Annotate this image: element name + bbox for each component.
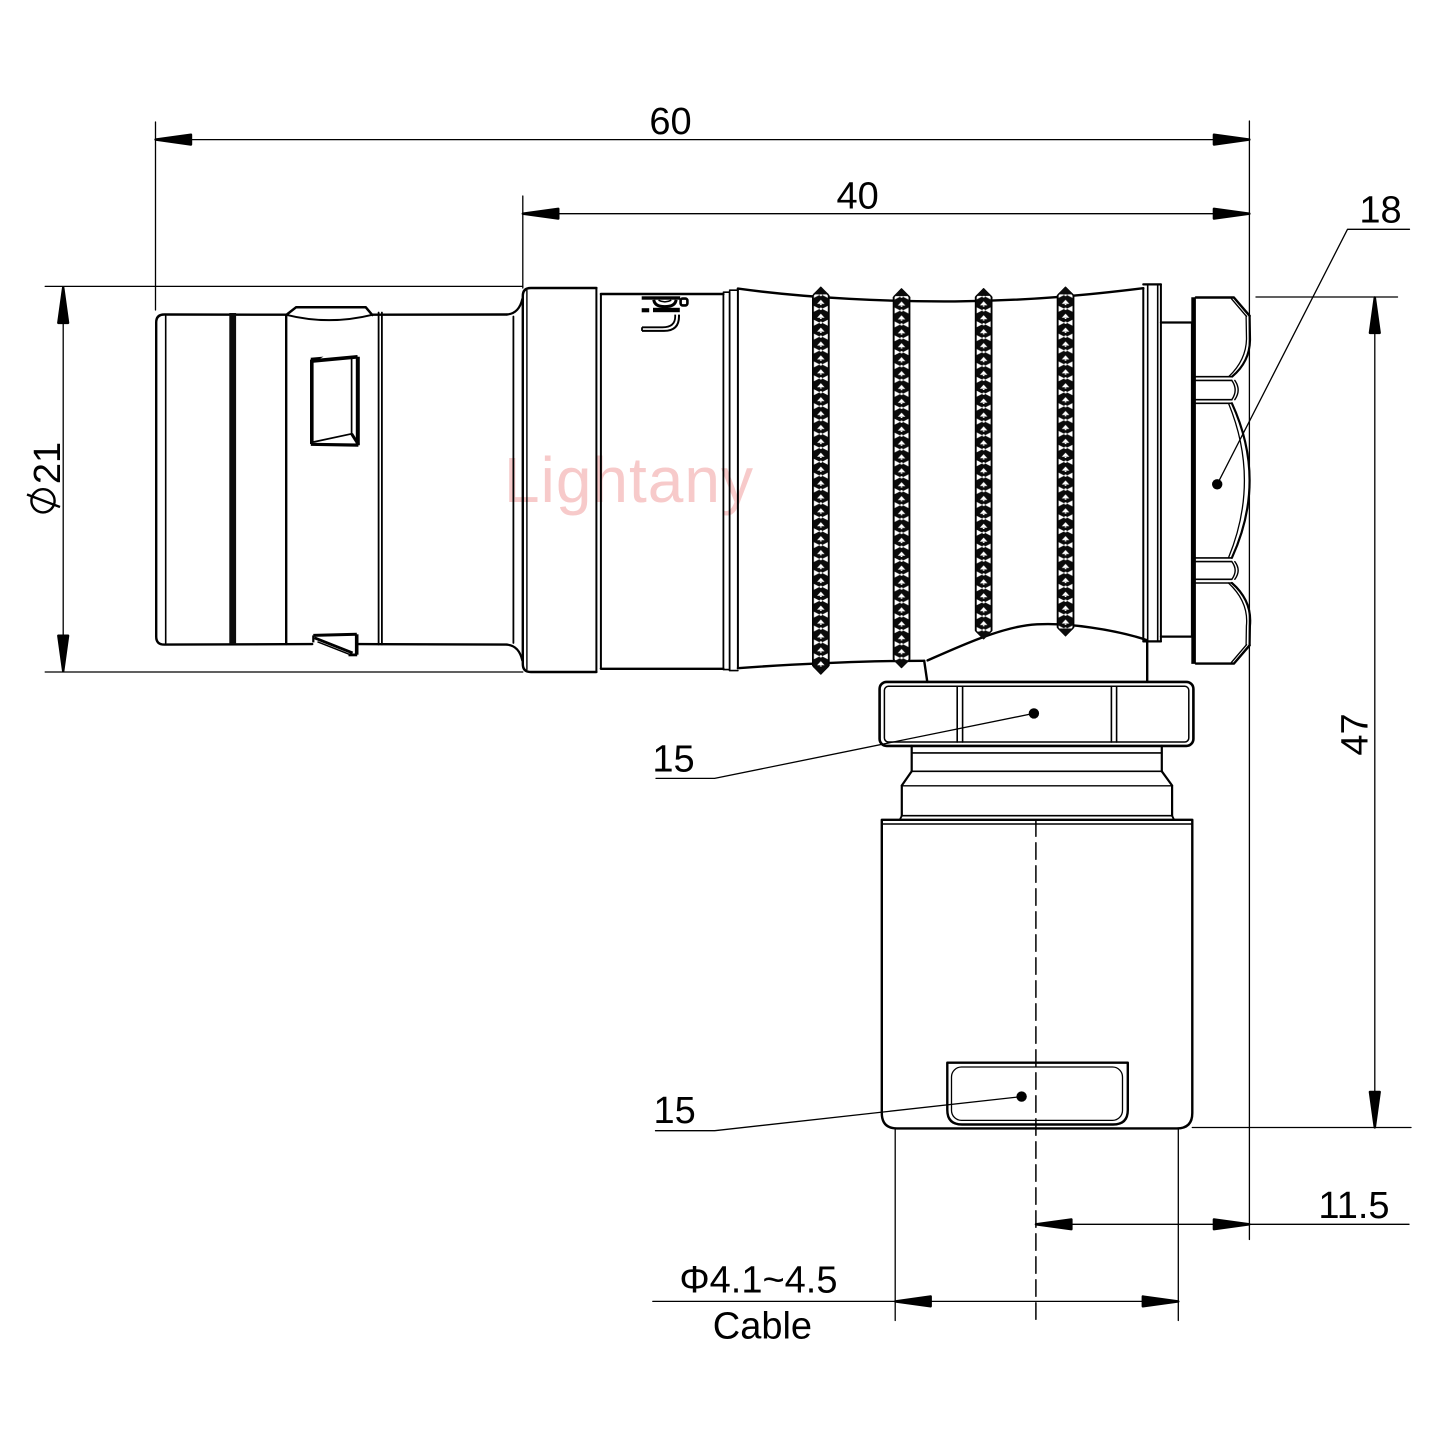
svg-text:21: 21 [27,442,69,484]
svg-text:Φ4.1~4.5: Φ4.1~4.5 [679,1259,837,1301]
svg-text:47: 47 [1335,713,1377,755]
svg-text:15: 15 [653,1090,695,1132]
svg-text:11.5: 11.5 [1318,1185,1389,1227]
svg-text:60: 60 [649,101,691,143]
svg-text:Cable: Cable [713,1306,812,1348]
svg-text:Lightany: Lightany [504,444,754,516]
svg-text:15: 15 [652,739,694,781]
svg-text:18: 18 [1359,190,1401,232]
svg-text:40: 40 [836,176,878,218]
